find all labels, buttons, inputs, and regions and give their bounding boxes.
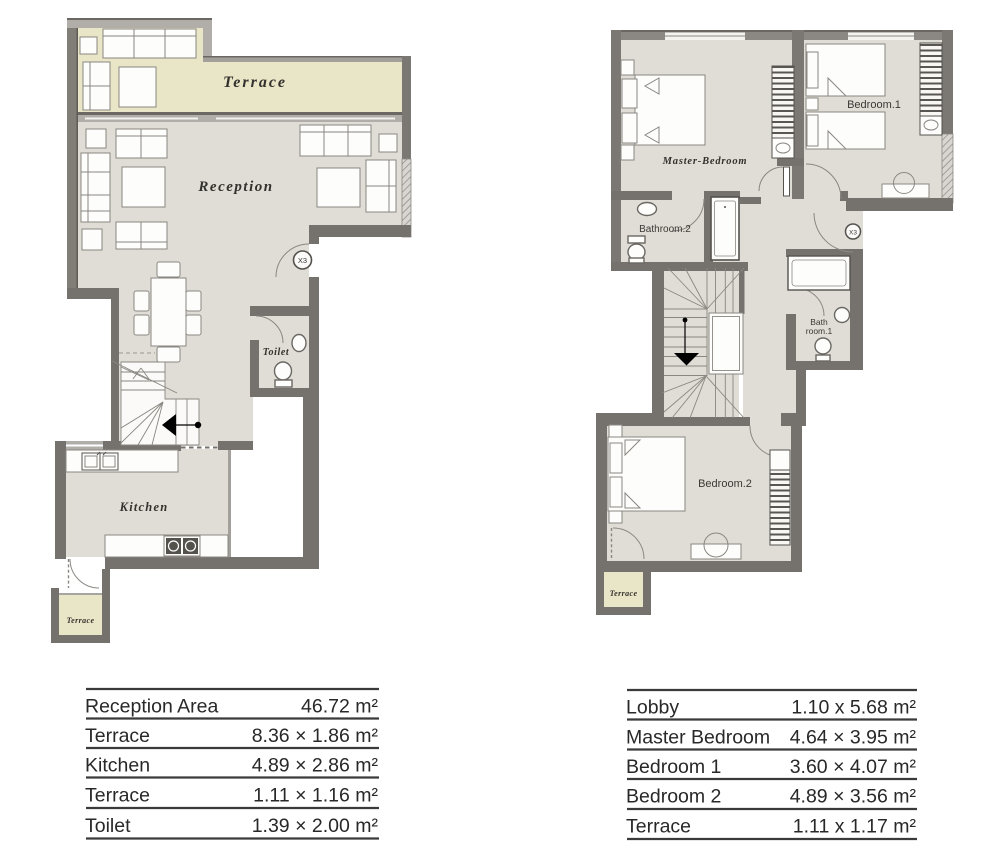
svg-text:4.89 × 2.86 m²: 4.89 × 2.86 m² bbox=[252, 755, 379, 777]
svg-text:4.89 × 3.56 m²: 4.89 × 3.56 m² bbox=[790, 786, 917, 808]
svg-text:Kitchen: Kitchen bbox=[119, 500, 169, 514]
svg-text:1.10 x 5.68 m²: 1.10 x 5.68 m² bbox=[791, 697, 916, 719]
svg-text:1.11 × 1.16 m²: 1.11 × 1.16 m² bbox=[253, 785, 378, 807]
svg-text:Terrace: Terrace bbox=[610, 589, 638, 598]
svg-text:Lobby: Lobby bbox=[626, 697, 679, 719]
svg-text:Bedroom 2: Bedroom 2 bbox=[626, 786, 721, 808]
svg-text:3.60 × 4.07 m²: 3.60 × 4.07 m² bbox=[790, 756, 917, 778]
svg-text:Terrace: Terrace bbox=[223, 74, 287, 91]
svg-text:Toilet: Toilet bbox=[85, 815, 131, 837]
svg-text:Bedroom 1: Bedroom 1 bbox=[626, 756, 721, 778]
svg-text:Master Bedroom: Master Bedroom bbox=[626, 727, 770, 749]
svg-text:Bedroom.2: Bedroom.2 bbox=[698, 478, 752, 490]
svg-text:Reception Area: Reception Area bbox=[85, 696, 218, 718]
svg-text:Terrace: Terrace bbox=[85, 785, 150, 807]
svg-text:Toilet: Toilet bbox=[263, 347, 290, 358]
svg-text:46.72 m²: 46.72 m² bbox=[301, 696, 378, 718]
svg-text:Bathroom.2: Bathroom.2 bbox=[639, 224, 691, 235]
svg-text:Kitchen: Kitchen bbox=[85, 755, 150, 777]
svg-text:1.11 x 1.17 m²: 1.11 x 1.17 m² bbox=[793, 816, 917, 838]
svg-text:room.1: room.1 bbox=[806, 326, 833, 336]
svg-text:4.64 × 3.95 m²: 4.64 × 3.95 m² bbox=[790, 727, 917, 749]
svg-text:Terrace: Terrace bbox=[626, 816, 691, 838]
svg-text:Terrace: Terrace bbox=[67, 616, 95, 625]
svg-text:X3: X3 bbox=[849, 230, 857, 237]
svg-text:Bedroom.1: Bedroom.1 bbox=[847, 99, 901, 111]
svg-text:Reception: Reception bbox=[197, 179, 273, 195]
svg-text:Master-Bedroom: Master-Bedroom bbox=[662, 156, 748, 167]
svg-text:1.39 × 2.00 m²: 1.39 × 2.00 m² bbox=[252, 815, 379, 837]
svg-text:8.36 × 1.86 m²: 8.36 × 1.86 m² bbox=[252, 725, 379, 747]
svg-text:X3: X3 bbox=[298, 256, 307, 265]
svg-text:Terrace: Terrace bbox=[85, 725, 150, 747]
